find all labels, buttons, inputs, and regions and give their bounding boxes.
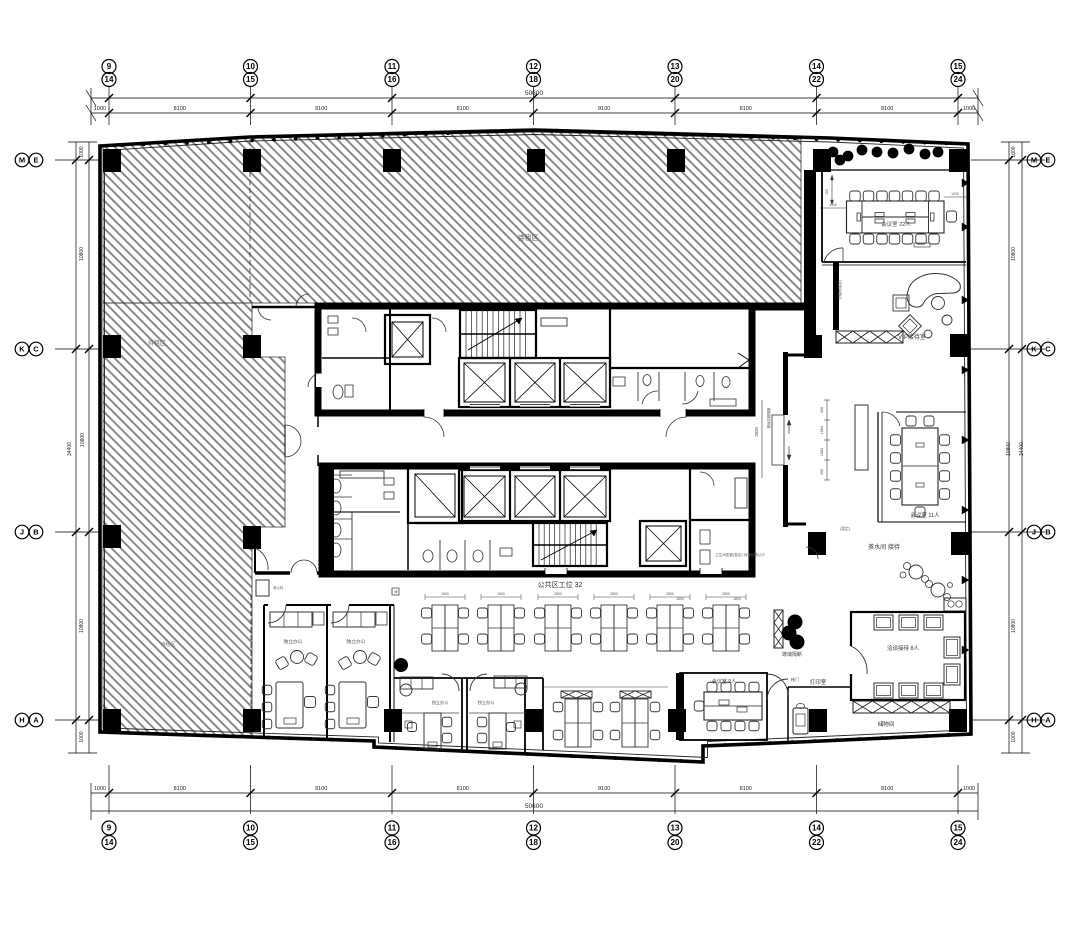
- svg-text:11: 11: [388, 824, 397, 833]
- svg-text:2800: 2800: [610, 592, 618, 596]
- svg-text:1064: 1064: [820, 426, 824, 434]
- svg-text:会议室 9人: 会议室 9人: [712, 678, 736, 685]
- svg-text:20: 20: [671, 838, 680, 847]
- svg-text:20: 20: [671, 75, 680, 84]
- svg-text:1000: 1000: [1011, 146, 1017, 157]
- svg-text:B: B: [33, 528, 39, 537]
- svg-text:8100: 8100: [598, 106, 610, 112]
- svg-text:J: J: [1032, 528, 1036, 537]
- svg-text:8100: 8100: [881, 106, 893, 112]
- svg-text:14: 14: [812, 62, 821, 71]
- svg-text:洽谈接待 8人: 洽谈接待 8人: [887, 644, 920, 652]
- svg-text:15: 15: [954, 824, 963, 833]
- svg-text:1200: 1200: [951, 192, 959, 196]
- svg-text:J: J: [20, 528, 24, 537]
- svg-text:储物间: 储物间: [878, 720, 895, 728]
- svg-text:1400: 1400: [829, 203, 837, 207]
- svg-text:1000: 1000: [963, 106, 975, 112]
- svg-text:22: 22: [812, 838, 821, 847]
- svg-text:K: K: [19, 345, 25, 354]
- svg-text:13: 13: [671, 62, 680, 71]
- svg-text:24: 24: [954, 838, 963, 847]
- svg-text:10800: 10800: [1011, 247, 1017, 261]
- svg-text:14: 14: [105, 75, 114, 84]
- svg-text:150: 150: [825, 189, 829, 195]
- svg-text:9: 9: [107, 62, 112, 71]
- svg-text:B: B: [1045, 528, 1051, 537]
- svg-text:E: E: [33, 156, 38, 165]
- svg-text:玻璃隔断: 玻璃隔断: [782, 651, 802, 658]
- svg-text:C: C: [33, 345, 39, 354]
- svg-text:15: 15: [246, 75, 255, 84]
- svg-text:8100: 8100: [315, 786, 327, 792]
- svg-text:卫生间配套(暂定) 待물业确认中: 卫生间配套(暂定) 待물业确认中: [715, 552, 765, 557]
- svg-text:18: 18: [529, 75, 538, 84]
- svg-text:待租区: 待租区: [148, 339, 166, 347]
- svg-text:1000: 1000: [1011, 731, 1017, 742]
- svg-text:50600: 50600: [525, 90, 543, 97]
- svg-text:9: 9: [107, 824, 112, 833]
- svg-text:C: C: [1045, 345, 1051, 354]
- svg-text:公共区工位 32: 公共区工位 32: [538, 580, 583, 589]
- svg-text:1000: 1000: [963, 786, 975, 792]
- svg-text:400: 400: [820, 469, 824, 475]
- svg-text:独立办公: 独立办公: [283, 638, 302, 645]
- svg-text:1000: 1000: [79, 731, 85, 742]
- svg-text:18: 18: [529, 838, 538, 847]
- svg-text:M: M: [19, 156, 25, 165]
- svg-text:1064: 1064: [820, 448, 824, 456]
- svg-text:2800: 2800: [554, 592, 562, 596]
- svg-text:1000: 1000: [79, 146, 85, 157]
- svg-text:22: 22: [812, 75, 821, 84]
- svg-text:50600: 50600: [525, 803, 543, 810]
- svg-text:1800: 1800: [733, 597, 741, 601]
- svg-text:34400: 34400: [1019, 442, 1025, 456]
- svg-text:8100: 8100: [598, 786, 610, 792]
- svg-text:独立办公: 独立办公: [346, 638, 365, 645]
- svg-text:10: 10: [246, 62, 255, 71]
- svg-text:消火栓: 消火栓: [273, 585, 284, 590]
- svg-text:8100: 8100: [457, 786, 469, 792]
- svg-text:12: 12: [529, 62, 538, 71]
- svg-text:M: M: [1031, 156, 1037, 165]
- svg-text:34400: 34400: [67, 442, 73, 456]
- svg-text:10800: 10800: [79, 247, 85, 261]
- svg-text:打印室: 打印室: [810, 678, 827, 686]
- svg-text:(暂定): (暂定): [840, 526, 851, 531]
- svg-text:2800: 2800: [441, 592, 449, 596]
- svg-text:8100: 8100: [174, 106, 186, 112]
- svg-text:8100: 8100: [881, 786, 893, 792]
- svg-text:VIP接待室: VIP接待室: [898, 333, 926, 341]
- svg-text:E: E: [1045, 156, 1050, 165]
- svg-text:会议室 22人: 会议室 22人: [881, 220, 911, 228]
- svg-text:13: 13: [671, 824, 680, 833]
- svg-text:10800: 10800: [79, 619, 85, 633]
- svg-text:A: A: [33, 716, 39, 725]
- svg-text:待租区: 待租区: [160, 641, 175, 648]
- svg-text:15: 15: [246, 838, 255, 847]
- svg-text:1800: 1800: [676, 597, 684, 601]
- svg-text:1000: 1000: [94, 106, 106, 112]
- svg-text:14: 14: [105, 838, 114, 847]
- svg-text:会议室 11人: 会议室 11人: [910, 511, 940, 519]
- svg-text:14: 14: [812, 824, 821, 833]
- svg-text:16: 16: [388, 75, 397, 84]
- svg-text:衣帽间(暂定): 衣帽间(暂定): [837, 280, 842, 300]
- svg-text:8100: 8100: [315, 106, 327, 112]
- svg-text:12: 12: [529, 824, 538, 833]
- svg-text:待租区: 待租区: [518, 233, 539, 242]
- svg-text:H: H: [19, 716, 24, 725]
- svg-text:11: 11: [388, 62, 397, 71]
- svg-text:独立办公: 独立办公: [478, 699, 496, 706]
- svg-text:2800: 2800: [497, 592, 505, 596]
- svg-text:8100: 8100: [740, 106, 752, 112]
- svg-text:2800: 2800: [666, 592, 674, 596]
- svg-text:H: H: [1031, 716, 1036, 725]
- svg-text:10800: 10800: [80, 433, 86, 447]
- svg-text:1000: 1000: [94, 786, 106, 792]
- svg-text:K: K: [1031, 345, 1037, 354]
- svg-text:10800: 10800: [1006, 442, 1012, 456]
- svg-text:15: 15: [954, 62, 963, 71]
- svg-text:16: 16: [388, 838, 397, 847]
- svg-text:茶水间 接待: 茶水间 接待: [868, 543, 900, 551]
- svg-text:独立办公: 独立办公: [432, 699, 450, 706]
- svg-text:2928: 2928: [754, 427, 759, 437]
- svg-text:A: A: [1045, 716, 1051, 725]
- svg-text:10: 10: [246, 824, 255, 833]
- svg-text:8100: 8100: [740, 786, 752, 792]
- svg-text:8100: 8100: [174, 786, 186, 792]
- svg-text:梯门: 梯门: [791, 676, 799, 683]
- svg-text:绿: 绿: [394, 589, 397, 594]
- svg-text:8100: 8100: [457, 106, 469, 112]
- svg-text:玻璃花格隔断: 玻璃花格隔断: [766, 407, 771, 428]
- svg-text:400: 400: [820, 407, 824, 413]
- svg-text:10800: 10800: [1011, 619, 1017, 633]
- svg-text:24: 24: [954, 75, 963, 84]
- svg-text:2800: 2800: [722, 592, 730, 596]
